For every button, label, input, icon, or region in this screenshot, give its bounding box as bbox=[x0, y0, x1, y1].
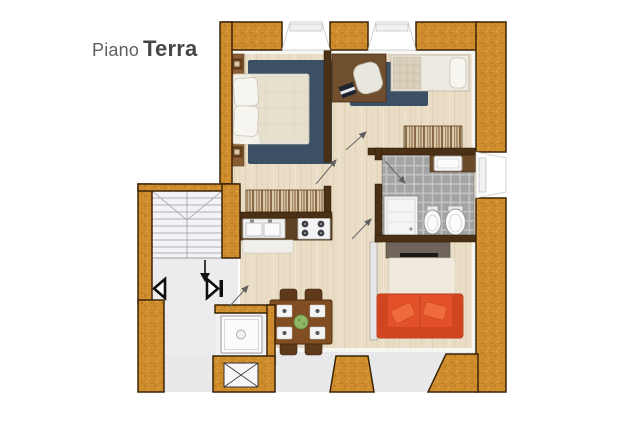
sofa bbox=[377, 294, 463, 338]
pillow-bottom bbox=[233, 105, 259, 136]
wall-right-upper bbox=[476, 22, 506, 152]
living-rug bbox=[389, 258, 455, 298]
bathroom bbox=[382, 155, 476, 238]
plant bbox=[294, 315, 308, 329]
study-dresser bbox=[404, 126, 462, 150]
kitchen-sink bbox=[243, 219, 285, 238]
wall-bathroom-west-upper bbox=[375, 148, 382, 160]
double-bed bbox=[233, 74, 309, 144]
wall-stair-right bbox=[222, 184, 240, 258]
wall-bedroom-divider bbox=[324, 50, 331, 162]
dishwasher bbox=[243, 240, 293, 253]
shower-drain bbox=[409, 227, 412, 230]
sofa-arm-left bbox=[377, 294, 388, 338]
window-bedroom bbox=[282, 22, 330, 50]
sofa-backrest bbox=[388, 327, 452, 338]
window-bathroom bbox=[476, 152, 506, 198]
wall-bathroom-west-lower bbox=[375, 184, 382, 242]
wall-right-lower bbox=[476, 198, 506, 392]
title-prefix: Piano bbox=[92, 40, 139, 60]
shower bbox=[384, 196, 418, 238]
wall-top-right bbox=[416, 22, 478, 50]
laundry-drain bbox=[237, 330, 246, 339]
window-study bbox=[368, 22, 416, 50]
wall-bedroom-south bbox=[230, 212, 332, 218]
wall-bathroom-north bbox=[368, 148, 478, 155]
toilet bbox=[446, 206, 466, 235]
sconce-bottom-light bbox=[235, 150, 240, 155]
tv-cabinet bbox=[386, 242, 450, 258]
wall-left-bedroom bbox=[220, 22, 232, 184]
gas-hob bbox=[298, 218, 330, 239]
floor-plan-page: PianoTerra bbox=[0, 0, 640, 427]
wall-bottom-left bbox=[138, 300, 164, 392]
living-partition-wall bbox=[370, 242, 377, 340]
wall-bedroom-stub bbox=[324, 186, 331, 212]
single-bed bbox=[391, 55, 469, 91]
faucet-left bbox=[250, 220, 254, 223]
wall-top-middle bbox=[330, 22, 368, 50]
floor-plan-drawing bbox=[0, 0, 640, 427]
single-bed-pillow bbox=[450, 58, 466, 88]
washbasin bbox=[434, 156, 462, 171]
wall-stair-left bbox=[138, 184, 152, 304]
wall-bathroom-south bbox=[375, 235, 478, 242]
pillow-top bbox=[233, 77, 259, 107]
wall-laundry-top bbox=[215, 305, 275, 313]
faucet-right bbox=[268, 220, 272, 223]
bedroom-wardrobe bbox=[246, 190, 330, 212]
laundry-closet bbox=[216, 312, 267, 356]
page-title: PianoTerra bbox=[92, 36, 197, 62]
elevator-shaft bbox=[224, 363, 258, 387]
sofa-arm-right bbox=[452, 294, 463, 338]
sconce-top-light bbox=[235, 62, 240, 67]
title-name: Terra bbox=[143, 36, 197, 61]
wall-bottom-pier bbox=[330, 356, 374, 392]
tv bbox=[400, 253, 438, 257]
